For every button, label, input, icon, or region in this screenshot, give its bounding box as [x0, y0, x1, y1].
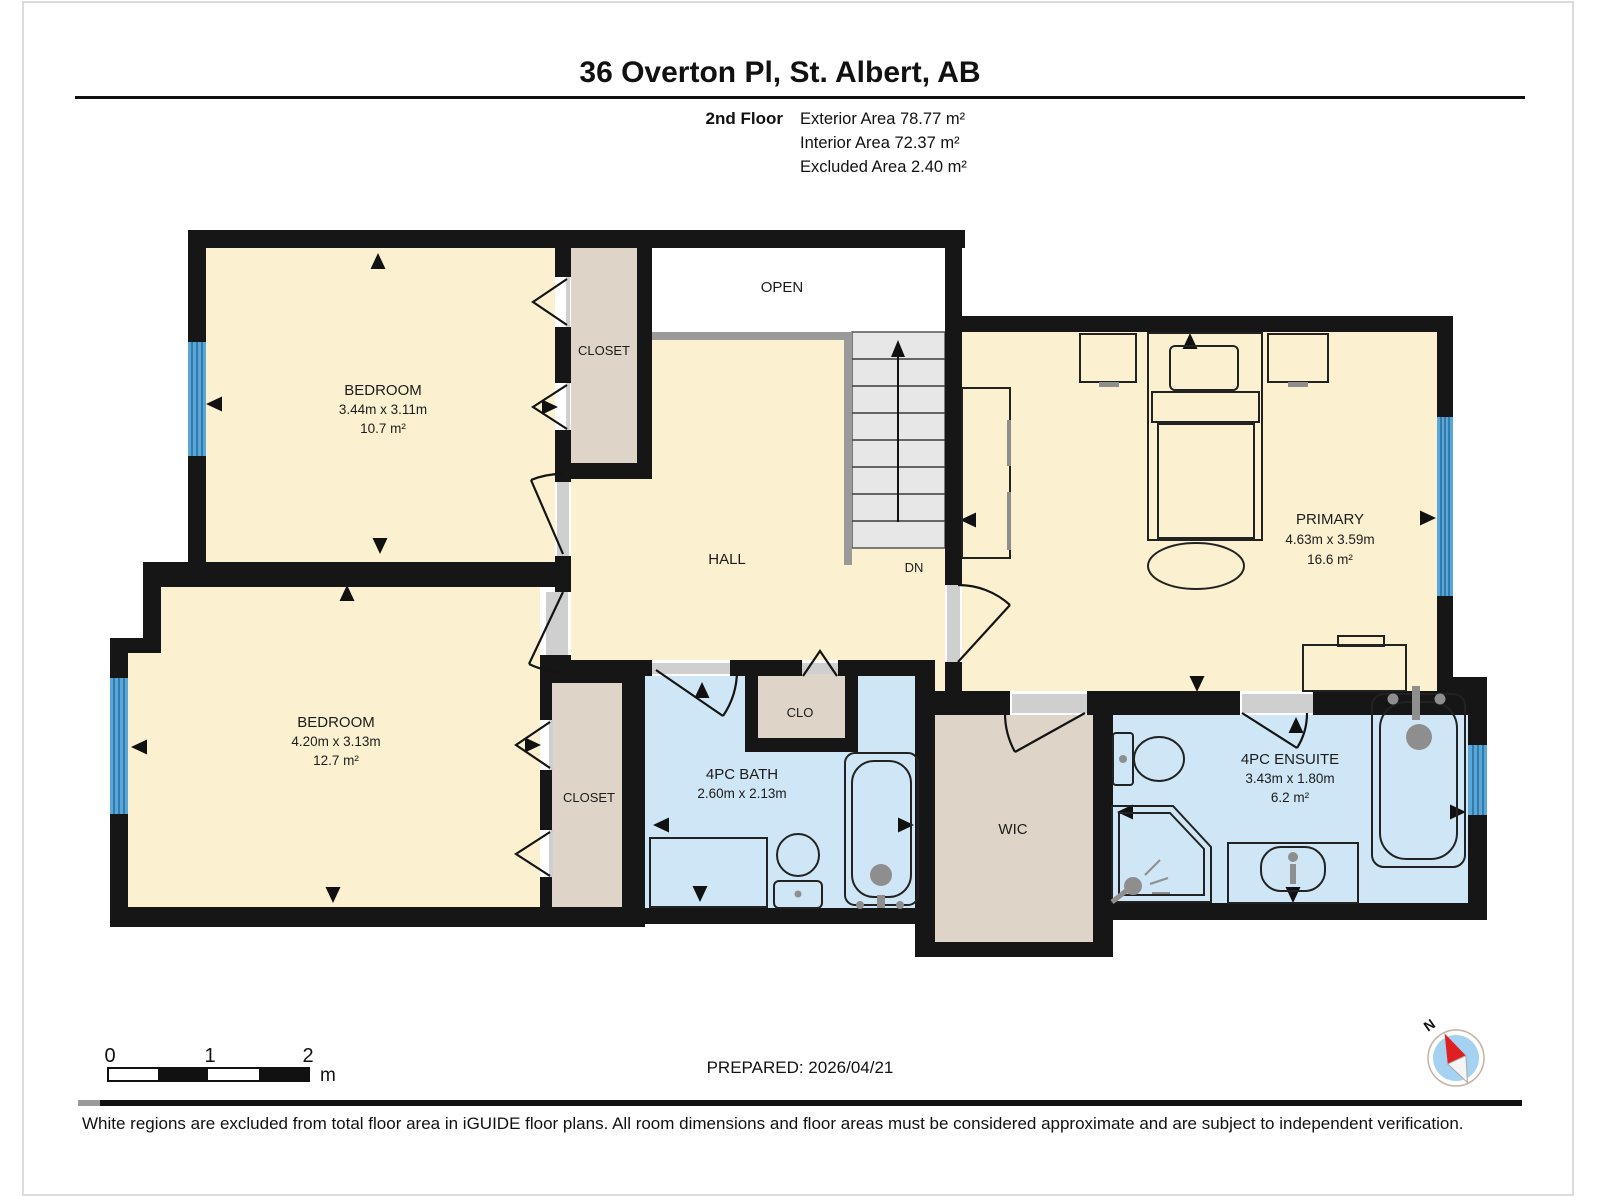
floor-label: 2nd Floor [706, 109, 784, 128]
room-dims-ensuite: 3.43m x 1.80m [1245, 771, 1334, 786]
stat-exterior-area: Exterior Area 78.77 m² [800, 110, 966, 128]
room-area-primary: 16.6 m² [1307, 552, 1353, 567]
room-label-primary: PRIMARY [1296, 511, 1364, 528]
primary-floor [962, 332, 1437, 691]
room-label-closet-bottom: CLOSET [563, 790, 615, 805]
scale-label-1: 1 [204, 1045, 215, 1067]
room-label-bedroom-top: BEDROOM [344, 382, 422, 399]
scale-unit-label: m [320, 1065, 336, 1086]
room-dims-bath: 2.60m x 2.13m [697, 786, 786, 801]
window [188, 342, 206, 456]
window [1468, 745, 1487, 815]
window [110, 678, 128, 814]
scale-label-0: 0 [104, 1045, 115, 1067]
room-label-clo: CLO [787, 705, 814, 720]
scale-bar-segment [158, 1068, 208, 1081]
prepared-date: PREPARED: 2026/04/21 [707, 1058, 894, 1077]
staircase [852, 332, 945, 548]
window [1437, 417, 1453, 596]
footer-divider [78, 1100, 1522, 1106]
room-label-wic: WIC [998, 821, 1027, 838]
scale-bar-segment [259, 1068, 309, 1081]
room-area-ensuite: 6.2 m² [1271, 790, 1310, 805]
stat-excluded-area: Excluded Area 2.40 m² [800, 158, 967, 176]
floorplan-canvas: 36 Overton Pl, St. Albert, AB 2nd Floor … [0, 0, 1600, 1200]
header-divider [75, 96, 1525, 99]
room-label-open: OPEN [761, 279, 804, 296]
room-dims-primary: 4.63m x 3.59m [1285, 532, 1374, 547]
stat-interior-area: Interior Area 72.37 m² [800, 134, 960, 152]
compass: N [1421, 1016, 1484, 1087]
room-label-ensuite: 4PC ENSUITE [1241, 751, 1339, 768]
header: 36 Overton Pl, St. Albert, AB 2nd Floor … [75, 56, 1525, 176]
room-label-bedroom-bottom: BEDROOM [297, 714, 375, 731]
room-dims-bedroom-top: 3.44m x 3.11m [339, 402, 427, 417]
railing-horizontal [652, 332, 852, 340]
scale-bar: 0 1 2 m [104, 1045, 335, 1086]
room-area-bedroom-top: 10.7 m² [360, 421, 406, 436]
page-title: 36 Overton Pl, St. Albert, AB [579, 56, 980, 89]
room-area-bedroom-bottom: 12.7 m² [313, 753, 359, 768]
room-label-closet-top: CLOSET [578, 343, 630, 358]
room-label-bath: 4PC BATH [706, 766, 778, 783]
disclaimer-text: White regions are excluded from total fl… [82, 1114, 1464, 1133]
floorplan-page: 36 Overton Pl, St. Albert, AB 2nd Floor … [0, 0, 1600, 1200]
railing-vertical [844, 332, 852, 565]
compass-north-label: N [1421, 1016, 1438, 1035]
room-dims-bedroom-bottom: 4.20m x 3.13m [291, 734, 380, 749]
stairs-dn-label: DN [905, 560, 924, 575]
room-label-hall: HALL [708, 551, 746, 568]
scale-label-2: 2 [302, 1045, 313, 1067]
